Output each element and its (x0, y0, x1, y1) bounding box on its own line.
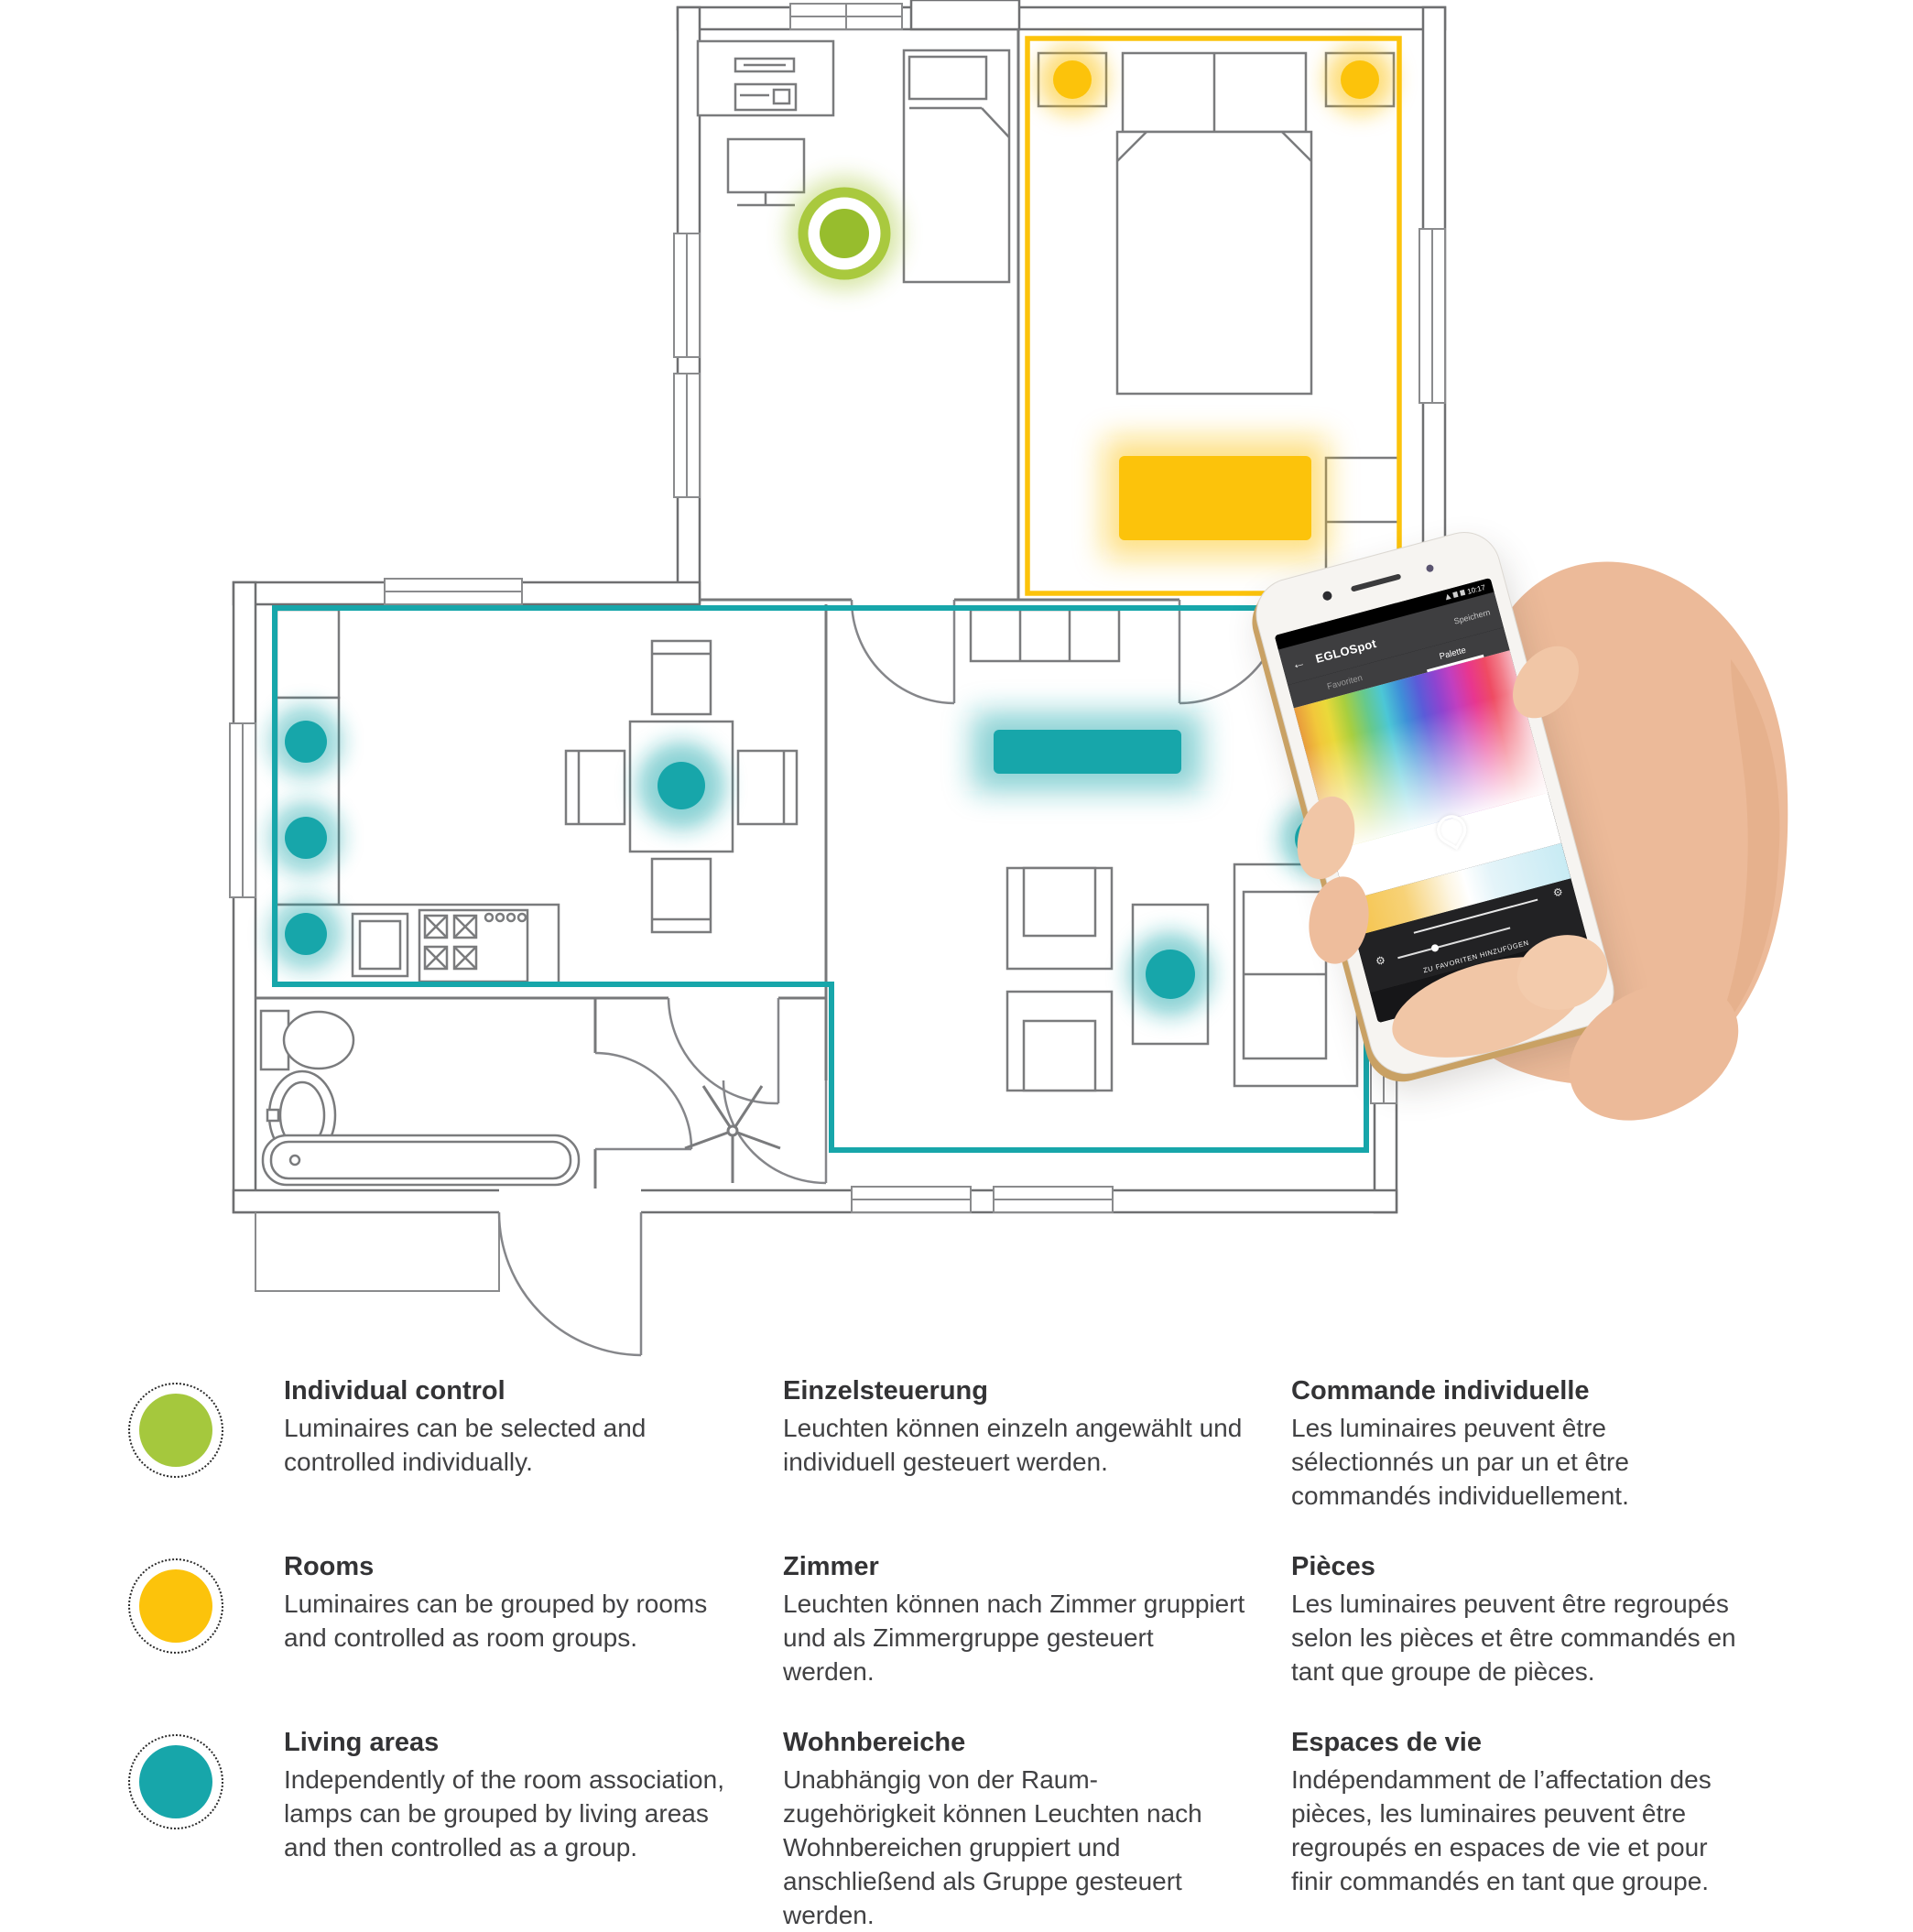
legend-title: Living areas (284, 1725, 746, 1760)
legend-title: Wohnbereiche (783, 1725, 1255, 1760)
luminaire-living-table (1146, 950, 1195, 999)
legend-body: Les luminaires peuvent être sélectionnés… (1291, 1411, 1754, 1513)
nav-back-icon[interactable]: ◁ (1424, 984, 1438, 1002)
battery-icon (1460, 590, 1465, 596)
legend-rooms-fr: Pièces Les luminaires peuvent être regro… (1291, 1549, 1913, 1688)
legend-dot-individual (128, 1373, 284, 1513)
toilet-bowl (284, 1012, 353, 1069)
front-camera-icon (1321, 591, 1332, 602)
luminaire-living-k3 (285, 913, 327, 955)
legend-body: Independently of the room association, l… (284, 1763, 746, 1864)
brochure-page: { "colors": { "green_ring": "#a9c93e", "… (0, 0, 1913, 1913)
legend-title: Einzelsteuerung (783, 1373, 1255, 1408)
legend-body: Leuchten können nach Zimmer gruppiert un… (783, 1587, 1245, 1688)
legend-body: Les luminaires peuvent être regroupés se… (1291, 1587, 1754, 1688)
legend-body: Luminaires can be selected and controlle… (284, 1411, 746, 1479)
luminaire-room-1 (1053, 60, 1092, 99)
legend-individual-de: Einzelsteuerung Leuchten können einzeln … (783, 1373, 1291, 1513)
entry-door-gap (499, 1189, 641, 1214)
chair (652, 859, 711, 932)
dining-luminaire (637, 742, 725, 830)
proximity-sensor (1426, 564, 1435, 573)
luminaire-room-2 (1341, 60, 1379, 99)
earpiece-speaker (1351, 573, 1402, 592)
double-bed (1117, 132, 1311, 394)
legend-dot-rooms (128, 1549, 284, 1688)
nav-home-icon[interactable]: ○ (1477, 971, 1488, 987)
legend-body: Luminaires can be grouped by rooms and c… (284, 1587, 746, 1655)
chair (738, 751, 797, 824)
nav-recents-icon[interactable]: □ (1528, 957, 1539, 973)
legend-rooms-en: Rooms Luminaires can be grouped by rooms… (284, 1549, 783, 1688)
coat-rack (685, 1086, 780, 1183)
luminaire-individual (788, 177, 901, 290)
bathroom-furniture (261, 1011, 579, 1185)
save-action[interactable]: Speichern (1453, 608, 1492, 626)
luminaire-room-bar (1119, 456, 1311, 540)
legend-living-de: Wohnbereiche Unabhängig von der Raum-zug… (783, 1725, 1291, 1932)
porch-outline (255, 1212, 499, 1291)
wifi-icon (1452, 592, 1458, 598)
legend-title: Pièces (1291, 1549, 1876, 1584)
living-zone-outline (275, 608, 1366, 1150)
app-title: EGLOSpot (1314, 635, 1378, 665)
legend-body: Indépendamment de l’affectation des pièc… (1291, 1763, 1754, 1898)
luminaire-living-bar (994, 730, 1181, 774)
legend-individual-fr: Commande individuelle Les luminaires peu… (1291, 1373, 1913, 1513)
monitor (728, 139, 804, 192)
luminaire-living-k2 (285, 817, 327, 859)
legend-dot-living-areas (128, 1725, 284, 1932)
brightness-knob[interactable] (1430, 943, 1440, 952)
back-arrow-icon[interactable]: ← (1289, 654, 1307, 672)
chair (566, 751, 625, 824)
signal-icon (1444, 593, 1451, 600)
legend-title: Espaces de vie (1291, 1725, 1876, 1760)
legend-individual-en: Individual control Luminaires can be sel… (284, 1373, 783, 1513)
legend-rooms-de: Zimmer Leuchten können nach Zimmer grupp… (783, 1549, 1291, 1688)
legend-living-en: Living areas Independently of the room a… (284, 1725, 783, 1932)
gear-icon[interactable]: ⚙ (1375, 953, 1387, 968)
legend: Individual control Luminaires can be sel… (0, 1373, 1913, 1932)
luminaire-living-dining (658, 762, 705, 809)
legend-body: Unabhängig von der Raum-zugehörigkeit kö… (783, 1763, 1245, 1932)
gear-icon[interactable]: ⚙ (1551, 885, 1564, 899)
status-time: 10:17 (1466, 582, 1486, 595)
legend-living-fr: Espaces de vie Indépendamment de l’affec… (1291, 1725, 1913, 1932)
luminaire-living-k1 (285, 721, 327, 763)
pillow (909, 57, 986, 99)
living-zone-kitchen-luminaires (269, 705, 342, 971)
legend-title: Individual control (284, 1373, 746, 1408)
legend-title: Commande individuelle (1291, 1373, 1876, 1408)
kitchen-cabinet-tall (277, 610, 339, 698)
chair (652, 641, 711, 714)
legend-title: Rooms (284, 1549, 746, 1584)
green-core (820, 209, 869, 258)
legend-body: Leuchten können einzeln angewählt und in… (783, 1411, 1245, 1479)
sideboard (971, 610, 1119, 661)
legend-title: Zimmer (783, 1549, 1255, 1584)
